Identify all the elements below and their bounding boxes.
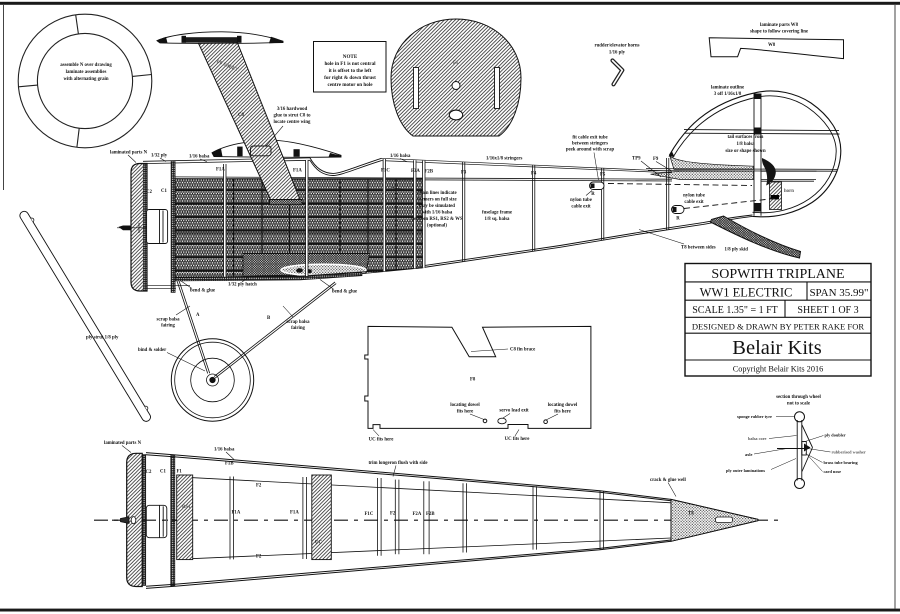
svg-text:F9: F9 xyxy=(653,157,659,162)
svg-text:WW1 ELECTRIC: WW1 ELECTRIC xyxy=(700,285,793,299)
svg-text:scrap balsa: scrap balsa xyxy=(156,318,180,323)
svg-text:fuselage frame: fuselage frame xyxy=(482,211,512,216)
svg-text:C1: C1 xyxy=(160,470,166,475)
svg-text:laminate assemblies: laminate assemblies xyxy=(66,70,107,75)
svg-text:section through wheel: section through wheel xyxy=(776,395,821,400)
svg-text:F1A: F1A xyxy=(216,168,225,173)
svg-text:F2: F2 xyxy=(256,555,262,560)
svg-text:T8 between sides: T8 between sides xyxy=(681,246,716,251)
svg-text:F2: F2 xyxy=(390,512,396,517)
svg-text:F2A: F2A xyxy=(413,512,422,517)
svg-text:F2: F2 xyxy=(256,484,262,489)
svg-text:3 off 1/16x1/8: 3 off 1/16x1/8 xyxy=(714,92,742,97)
svg-text:hole in F1 is not central: hole in F1 is not central xyxy=(324,61,376,67)
svg-text:C1: C1 xyxy=(161,189,167,194)
svg-text:centre motor on hole: centre motor on hole xyxy=(328,82,374,88)
svg-text:bend & glue: bend & glue xyxy=(190,289,215,294)
svg-text:ply strut 1/8 ply: ply strut 1/8 ply xyxy=(86,336,119,341)
svg-text:F1B: F1B xyxy=(225,462,234,467)
svg-text:glue to strut C8 to: glue to strut C8 to xyxy=(273,114,311,119)
svg-text:W8: W8 xyxy=(768,43,776,48)
svg-text:1/8 sq. balsa: 1/8 sq. balsa xyxy=(485,217,511,222)
svg-text:laminate parts W8: laminate parts W8 xyxy=(760,23,799,28)
svg-text:1/16 balsa: 1/16 balsa xyxy=(214,448,235,453)
svg-text:1/16 balsa: 1/16 balsa xyxy=(189,155,210,160)
svg-text:laminated parts N: laminated parts N xyxy=(110,151,148,156)
svg-text:F1A: F1A xyxy=(232,511,241,516)
svg-text:size or shape shown: size or shape shown xyxy=(725,149,766,154)
svg-text:trim longeron flush with side: trim longeron flush with side xyxy=(368,461,427,466)
svg-text:1/16 balsa: 1/16 balsa xyxy=(390,154,411,159)
svg-text:DESIGNED & DRAWN BY PETER RAKE: DESIGNED & DRAWN BY PETER RAKE FOR xyxy=(692,321,865,331)
svg-text:TP9: TP9 xyxy=(632,157,641,162)
svg-text:1/32 ply: 1/32 ply xyxy=(151,154,168,159)
svg-text:F1C: F1C xyxy=(365,512,374,517)
svg-text:peek around with scrap: peek around with scrap xyxy=(566,148,615,153)
svg-text:C8 fin brace: C8 fin brace xyxy=(510,348,535,353)
svg-text:1/8 balsa: 1/8 balsa xyxy=(737,142,756,147)
svg-text:SCALE 1.35" = 1 FT: SCALE 1.35" = 1 FT xyxy=(692,305,778,316)
svg-text:ply doubler: ply doubler xyxy=(825,433,846,438)
svg-text:laminated parts N: laminated parts N xyxy=(104,441,142,446)
svg-text:servo lead exit: servo lead exit xyxy=(499,409,529,414)
svg-text:1/8 ply skid: 1/8 ply skid xyxy=(725,248,749,253)
svg-text:balsa core: balsa core xyxy=(748,436,767,441)
svg-text:fairing: fairing xyxy=(161,324,175,329)
svg-text:F2B: F2B xyxy=(425,170,434,175)
svg-text:(optional): (optional) xyxy=(427,224,447,229)
svg-text:UC: UC xyxy=(315,541,322,546)
svg-text:assemble N over drawing: assemble N over drawing xyxy=(60,63,112,68)
svg-text:1/32 ply hatch: 1/32 ply hatch xyxy=(228,283,257,288)
svg-text:rubberised washer: rubberised washer xyxy=(832,450,866,455)
svg-text:scrap balsa: scrap balsa xyxy=(286,320,310,325)
svg-text:sponge rubber tyre: sponge rubber tyre xyxy=(737,414,772,419)
svg-text:nylon tube: nylon tube xyxy=(570,198,592,203)
svg-text:3/16 hardwood: 3/16 hardwood xyxy=(277,107,308,112)
svg-text:locating dowel: locating dowel xyxy=(450,403,480,408)
svg-text:for right & down thrust: for right & down thrust xyxy=(324,75,376,81)
svg-text:locating dowel: locating dowel xyxy=(548,403,578,408)
svg-text:RS1: RS1 xyxy=(182,505,191,510)
svg-text:may be simulated: may be simulated xyxy=(419,204,455,209)
svg-text:card nose: card nose xyxy=(824,469,842,474)
svg-text:UC fits here: UC fits here xyxy=(369,438,394,443)
svg-text:crack & glue well: crack & glue well xyxy=(650,478,687,483)
svg-text:F1A: F1A xyxy=(293,169,302,174)
svg-text:C2: C2 xyxy=(146,470,152,475)
svg-text:with 1/16 balsa: with 1/16 balsa xyxy=(422,211,453,216)
svg-text:axle: axle xyxy=(745,452,752,457)
svg-text:nylon tube: nylon tube xyxy=(683,194,705,199)
svg-text:ply outer laminations: ply outer laminations xyxy=(726,468,765,473)
svg-text:F1: F1 xyxy=(453,61,459,66)
svg-text:tail surfaces from: tail surfaces from xyxy=(728,135,764,140)
svg-text:Copyright Belair Kits 2016: Copyright Belair Kits 2016 xyxy=(733,364,824,373)
svg-text:bind & solder: bind & solder xyxy=(138,348,167,353)
svg-text:chain lines indicate: chain lines indicate xyxy=(417,191,456,196)
svg-text:between RS1, RS2 & WS: between RS1, RS2 & WS xyxy=(411,217,463,222)
svg-text:bend & glue: bend & glue xyxy=(332,290,357,295)
svg-text:SOPWITH TRIPLANE: SOPWITH TRIPLANE xyxy=(711,267,844,282)
svg-text:F5: F5 xyxy=(600,173,606,178)
svg-text:NOTE: NOTE xyxy=(343,54,358,60)
svg-text:fits here: fits here xyxy=(554,409,571,414)
svg-text:not to scale: not to scale xyxy=(787,402,810,407)
svg-text:F1C: F1C xyxy=(381,168,390,173)
svg-text:A: A xyxy=(196,313,200,318)
svg-text:brass tube bearing: brass tube bearing xyxy=(824,460,859,465)
svg-text:fits here: fits here xyxy=(457,409,474,414)
svg-text:horn: horn xyxy=(784,189,794,194)
svg-text:formers on full size: formers on full size xyxy=(417,198,456,203)
svg-text:cable exit: cable exit xyxy=(684,200,704,205)
svg-text:C2: C2 xyxy=(146,190,152,195)
svg-text:fit cable exit tube: fit cable exit tube xyxy=(572,136,607,141)
svg-text:SHEET 1 OF 3: SHEET 1 OF 3 xyxy=(797,305,858,316)
svg-text:shape to follow covering line: shape to follow covering line xyxy=(750,30,808,35)
svg-text:F1A: F1A xyxy=(290,511,299,516)
svg-text:R: R xyxy=(591,192,595,197)
svg-text:F2B: F2B xyxy=(426,512,435,517)
svg-text:F3: F3 xyxy=(461,170,467,175)
svg-text:1/16 ply: 1/16 ply xyxy=(609,51,626,56)
svg-text:C8: C8 xyxy=(238,113,244,118)
svg-text:cable exit: cable exit xyxy=(571,205,591,210)
svg-text:UC fits here: UC fits here xyxy=(505,437,530,442)
svg-text:R: R xyxy=(676,217,680,222)
svg-text:F4: F4 xyxy=(531,172,537,177)
svg-text:F8: F8 xyxy=(470,378,476,383)
svg-text:it is offset to the left: it is offset to the left xyxy=(329,68,372,74)
svg-text:with alternating grain: with alternating grain xyxy=(63,77,108,82)
svg-text:locate centre wing: locate centre wing xyxy=(274,120,312,125)
svg-text:F1: F1 xyxy=(177,470,183,475)
svg-text:laminate outline: laminate outline xyxy=(711,86,744,91)
svg-text:Belair Kits: Belair Kits xyxy=(732,337,821,359)
svg-text:SPAN 35.99": SPAN 35.99" xyxy=(809,287,868,299)
svg-text:between stringers: between stringers xyxy=(572,142,608,147)
svg-text:1/16x1/8 stringers: 1/16x1/8 stringers xyxy=(486,157,523,162)
svg-text:T8: T8 xyxy=(688,512,694,517)
svg-text:fairing: fairing xyxy=(291,326,305,331)
svg-text:F3A: F3A xyxy=(411,169,420,174)
svg-text:rudder/elevator horns: rudder/elevator horns xyxy=(594,44,639,49)
